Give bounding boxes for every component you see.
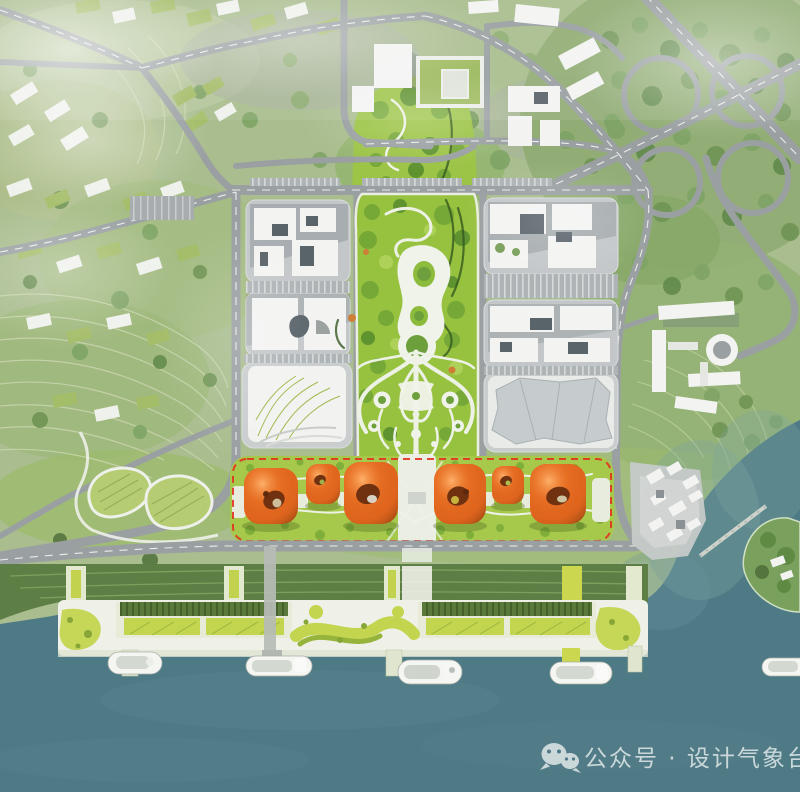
central-park <box>336 194 478 460</box>
deck-hall-east <box>418 602 596 638</box>
ferry-4 <box>550 662 612 684</box>
orange-pavilion-5 <box>491 466 525 511</box>
orange-pavilion-6 <box>529 464 587 532</box>
masterplan-rendering: 公众号 · 设计气象台 <box>0 0 800 792</box>
watermark-text: 公众号 · 设计气象台 <box>584 746 800 772</box>
orange-pavilion-4 <box>433 464 487 532</box>
orange-pavilion-1 <box>242 468 300 532</box>
orange-pavilion-strip <box>230 454 614 546</box>
east-block-crystal-hall <box>488 376 614 448</box>
ferry-3 <box>398 660 462 684</box>
ferry-5 <box>762 658 800 676</box>
ferry-1 <box>108 652 162 674</box>
orange-pavilion-2 <box>305 464 341 511</box>
axis-ramp <box>402 566 432 602</box>
waterfront-promenade <box>58 600 648 657</box>
ferry-2 <box>246 656 312 676</box>
pier-bridge <box>264 546 276 656</box>
